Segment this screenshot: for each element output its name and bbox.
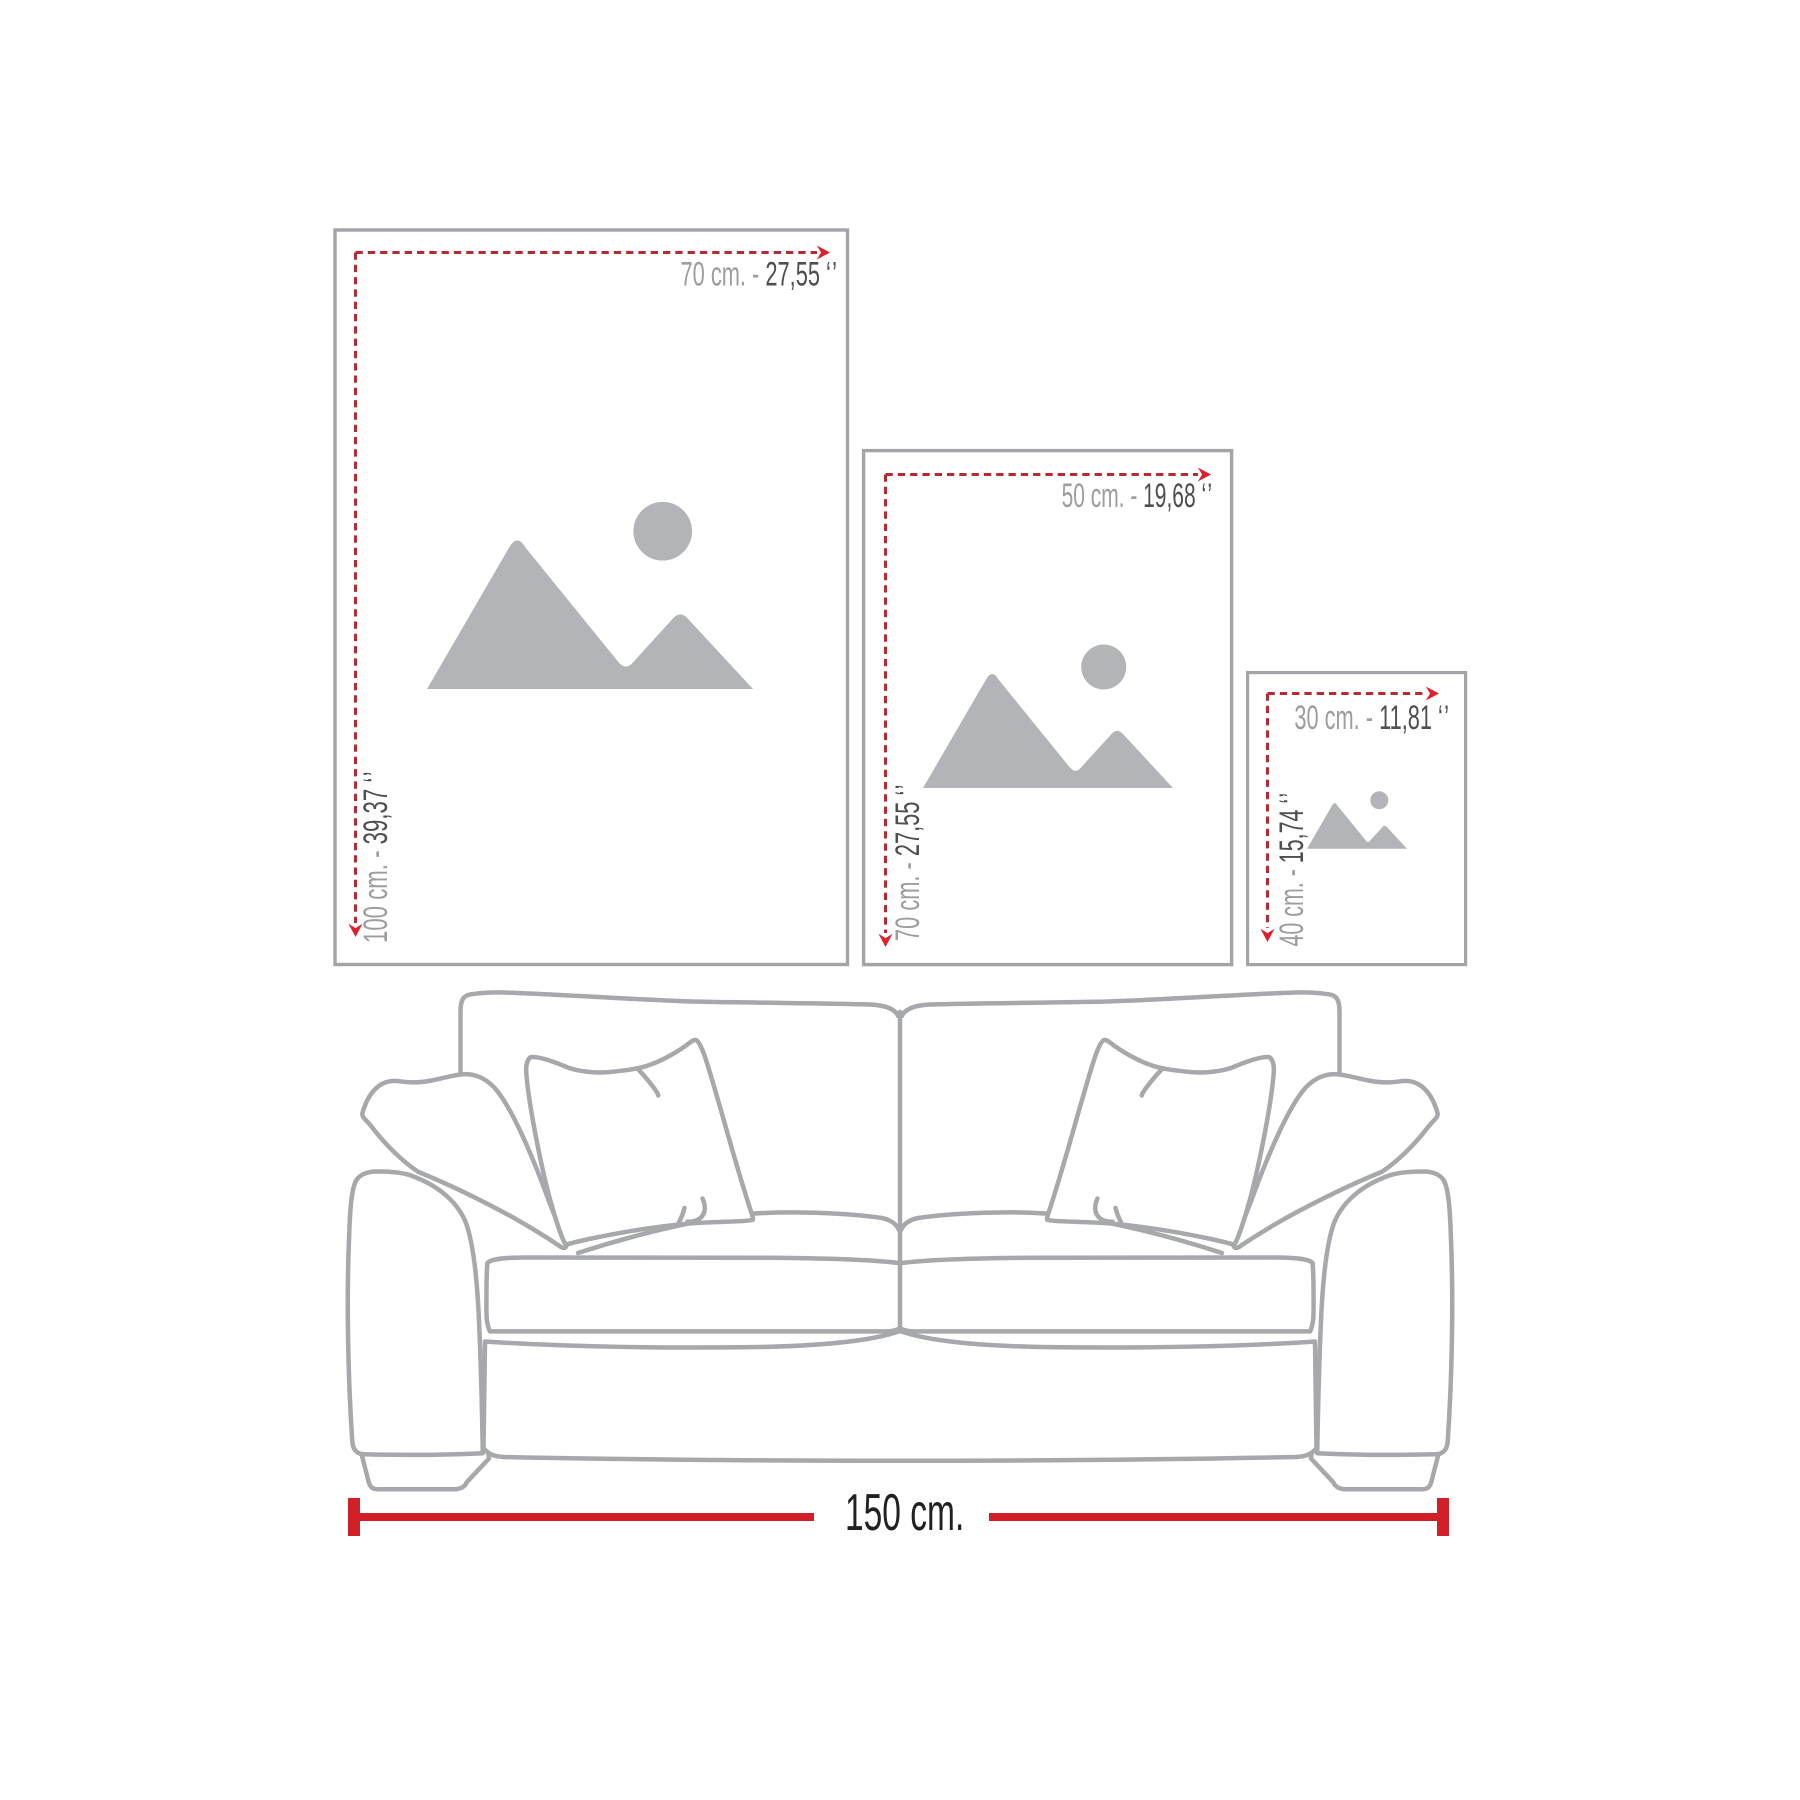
svg-text:40 cm. - 15,74 ‘’: 40 cm. - 15,74 ‘’ — [1273, 793, 1311, 947]
svg-text:50 cm. - 19,68 ‘’: 50 cm. - 19,68 ‘’ — [1062, 476, 1212, 515]
svg-text:30 cm. - 11,81 ‘’: 30 cm. - 11,81 ‘’ — [1294, 699, 1449, 737]
svg-text:100 cm. - 39,37 ‘’: 100 cm. - 39,37 ‘’ — [357, 771, 395, 943]
svg-text:150 cm.: 150 cm. — [845, 1484, 964, 1542]
svg-text:70 cm. - 27,55 ‘’: 70 cm. - 27,55 ‘’ — [889, 785, 927, 941]
svg-text:70 cm. - 27,55 ‘’: 70 cm. - 27,55 ‘’ — [681, 256, 837, 294]
